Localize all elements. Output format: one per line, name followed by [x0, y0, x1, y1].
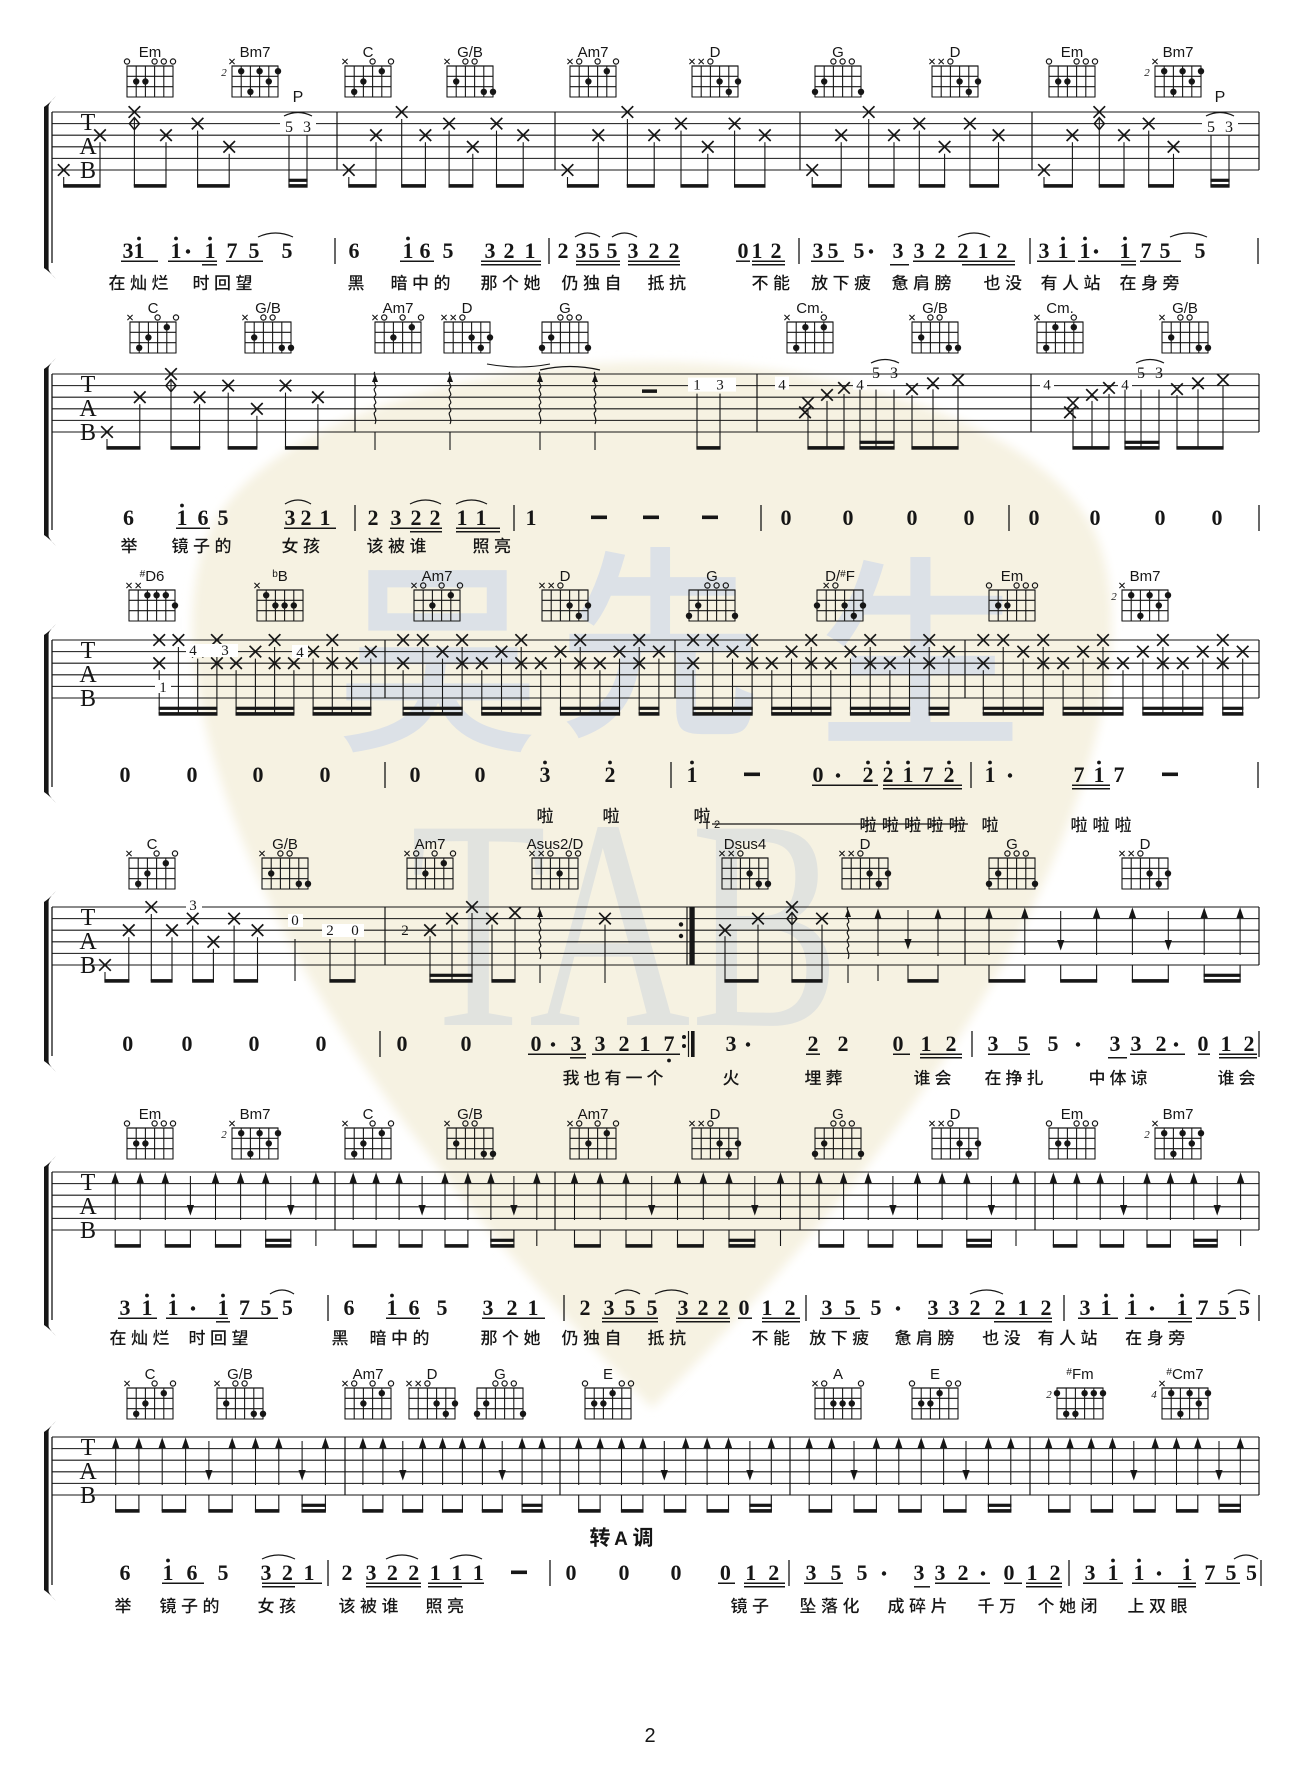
svg-text:G/B: G/B — [227, 1366, 253, 1383]
svg-text:3: 3 — [540, 762, 551, 787]
svg-text:3: 3 — [813, 238, 824, 263]
svg-text:0: 0 — [671, 1560, 682, 1585]
svg-text:3: 3 — [628, 238, 639, 263]
svg-text:4: 4 — [1151, 1389, 1157, 1401]
svg-text:5: 5 — [261, 1295, 272, 1320]
svg-text:1: 1 — [163, 1560, 174, 1585]
svg-text:1: 1 — [177, 505, 188, 530]
svg-text:G/B: G/B — [255, 300, 281, 317]
svg-text:2: 2 — [718, 1295, 729, 1320]
svg-text:Cm.: Cm. — [796, 300, 824, 317]
svg-text:1: 1 — [1080, 238, 1091, 263]
svg-text:G/B: G/B — [457, 1106, 483, 1123]
svg-text:0: 0 — [320, 762, 331, 787]
svg-text:0: 0 — [410, 762, 421, 787]
svg-text:4: 4 — [778, 378, 786, 394]
svg-text:3: 3 — [261, 1560, 272, 1585]
svg-text:0: 0 — [738, 238, 749, 263]
svg-text:2: 2 — [507, 1295, 518, 1320]
svg-text:1: 1 — [1134, 1560, 1145, 1585]
svg-text:T: T — [81, 110, 96, 136]
svg-text:3: 3 — [1131, 1031, 1142, 1056]
svg-text:2: 2 — [838, 1031, 849, 1056]
svg-text:5: 5 — [854, 238, 865, 263]
svg-text:Am7: Am7 — [415, 836, 446, 853]
svg-text:3: 3 — [485, 238, 496, 263]
svg-text:1: 1 — [473, 1560, 484, 1585]
svg-text:3: 3 — [716, 378, 724, 394]
svg-text:1: 1 — [525, 238, 536, 263]
svg-text:5: 5 — [1018, 1031, 1029, 1056]
svg-text:2: 2 — [1156, 1031, 1167, 1056]
svg-text:3: 3 — [1080, 1295, 1091, 1320]
svg-text:2: 2 — [1244, 1031, 1255, 1056]
svg-text:2: 2 — [669, 238, 680, 263]
svg-text:2: 2 — [970, 1295, 981, 1320]
svg-text:7: 7 — [227, 238, 238, 263]
svg-text:6: 6 — [123, 505, 134, 530]
svg-text:1: 1 — [171, 238, 182, 263]
svg-text:3: 3 — [576, 238, 587, 263]
svg-text:1: 1 — [1094, 762, 1105, 787]
svg-text:Cm.: Cm. — [1046, 300, 1074, 317]
svg-text:5: 5 — [1239, 1295, 1250, 1320]
svg-text:5: 5 — [1160, 238, 1171, 263]
svg-text:5: 5 — [607, 238, 618, 263]
svg-text:0: 0 — [893, 1031, 904, 1056]
svg-text:3: 3 — [366, 1560, 377, 1585]
svg-text:7: 7 — [1114, 762, 1125, 787]
svg-text:6: 6 — [349, 238, 360, 263]
svg-text:3: 3 — [678, 1295, 689, 1320]
svg-text:T: T — [81, 1170, 96, 1196]
svg-text:A: A — [79, 662, 97, 688]
svg-text:1: 1 — [1127, 1295, 1138, 1320]
svg-text:1: 1 — [457, 505, 468, 530]
svg-text:3: 3 — [571, 1031, 582, 1056]
svg-text:1: 1 — [526, 505, 537, 530]
svg-text:0: 0 — [316, 1031, 327, 1056]
svg-text:Bm7: Bm7 — [1130, 568, 1161, 585]
svg-text:2: 2 — [1144, 1129, 1150, 1141]
svg-text:0: 0 — [253, 762, 264, 787]
svg-text:3: 3 — [890, 365, 898, 382]
svg-text:G/B: G/B — [272, 836, 298, 853]
svg-text:2: 2 — [771, 238, 782, 263]
svg-text:2: 2 — [1050, 1560, 1061, 1585]
svg-text:5: 5 — [282, 1295, 293, 1320]
svg-text:Em: Em — [139, 44, 162, 61]
svg-text:0: 0 — [475, 762, 486, 787]
svg-text:2: 2 — [958, 1560, 969, 1585]
svg-text:A: A — [79, 134, 97, 160]
svg-text:7: 7 — [923, 762, 934, 787]
svg-text:2: 2 — [619, 1031, 630, 1056]
svg-text:0: 0 — [619, 1560, 630, 1585]
svg-text:3: 3 — [391, 505, 402, 530]
svg-text:P: P — [293, 89, 304, 106]
svg-text:2: 2 — [883, 762, 894, 787]
svg-text:2: 2 — [504, 238, 515, 263]
svg-text:3: 3 — [949, 1295, 960, 1320]
svg-text:0: 0 — [1029, 505, 1040, 530]
svg-text:T: T — [81, 372, 96, 398]
svg-text:B: B — [80, 158, 96, 184]
svg-text:A: A — [79, 1459, 97, 1485]
svg-text:Bm7: Bm7 — [1163, 44, 1194, 61]
svg-text:0: 0 — [1155, 505, 1166, 530]
svg-text:3: 3 — [123, 238, 134, 263]
svg-text:A: A — [79, 396, 97, 422]
svg-text:2: 2 — [368, 505, 379, 530]
svg-text:B: B — [80, 1483, 96, 1509]
svg-text:2: 2 — [326, 923, 334, 939]
svg-text:2: 2 — [946, 1031, 957, 1056]
svg-text:5: 5 — [589, 238, 600, 263]
svg-text:2: 2 — [430, 505, 441, 530]
svg-text:0: 0 — [813, 762, 824, 787]
svg-text:5: 5 — [1207, 119, 1215, 136]
svg-text:5: 5 — [218, 1560, 229, 1585]
svg-text:Am7: Am7 — [578, 44, 609, 61]
svg-text:3: 3 — [1039, 238, 1050, 263]
svg-text:3: 3 — [988, 1031, 999, 1056]
svg-text:0: 0 — [739, 1295, 750, 1320]
svg-text:3: 3 — [928, 1295, 939, 1320]
svg-text:5: 5 — [443, 238, 454, 263]
svg-text:1: 1 — [451, 1560, 462, 1585]
svg-text:3: 3 — [726, 1031, 737, 1056]
svg-text:Am7: Am7 — [383, 300, 414, 317]
svg-text:A: A — [833, 1366, 843, 1383]
svg-text:2: 2 — [580, 1295, 591, 1320]
svg-text:1: 1 — [1182, 1560, 1193, 1585]
svg-text:2: 2 — [408, 1560, 419, 1585]
svg-text:5: 5 — [625, 1295, 636, 1320]
svg-text:0: 0 — [1004, 1560, 1015, 1585]
svg-text:0: 0 — [397, 1031, 408, 1056]
svg-text:1: 1 — [1058, 238, 1069, 263]
svg-text:3: 3 — [483, 1295, 494, 1320]
svg-text:0: 0 — [1198, 1031, 1209, 1056]
svg-text:5: 5 — [437, 1295, 448, 1320]
svg-text:0: 0 — [187, 762, 198, 787]
svg-text:3: 3 — [285, 505, 296, 530]
svg-text:2: 2 — [221, 1129, 227, 1141]
svg-text:T: T — [81, 905, 96, 931]
svg-text:1: 1 — [752, 238, 763, 263]
svg-text:1: 1 — [304, 1560, 315, 1585]
svg-text:2: 2 — [301, 505, 312, 530]
svg-text:5: 5 — [285, 119, 293, 136]
svg-text:5: 5 — [1048, 1031, 1059, 1056]
svg-text:0: 0 — [964, 505, 975, 530]
svg-text:2: 2 — [935, 238, 946, 263]
svg-text:1: 1 — [134, 238, 145, 263]
svg-text:1: 1 — [978, 238, 989, 263]
svg-text:1: 1 — [921, 1031, 932, 1056]
svg-text:7: 7 — [1198, 1295, 1209, 1320]
svg-text:0: 0 — [1090, 505, 1101, 530]
svg-text:B: B — [80, 953, 96, 979]
svg-text:3: 3 — [1110, 1031, 1121, 1056]
svg-text:5: 5 — [828, 238, 839, 263]
svg-text:1: 1 — [1177, 1295, 1188, 1320]
svg-text:1: 1 — [528, 1295, 539, 1320]
svg-text:T: T — [81, 1435, 96, 1461]
svg-text:1: 1 — [762, 1295, 773, 1320]
svg-text:5: 5 — [218, 505, 229, 530]
svg-text:0: 0 — [781, 505, 792, 530]
svg-text:5: 5 — [1195, 238, 1206, 263]
svg-text:0: 0 — [291, 913, 299, 929]
svg-text:2: 2 — [1111, 591, 1117, 603]
svg-text:3: 3 — [1085, 1560, 1096, 1585]
svg-text:0: 0 — [1212, 505, 1223, 530]
svg-text:A: A — [79, 929, 97, 955]
svg-text:1: 1 — [687, 762, 698, 787]
svg-text:3: 3 — [604, 1295, 615, 1320]
svg-text:3: 3 — [221, 643, 229, 659]
svg-text:2: 2 — [605, 762, 616, 787]
svg-text:1: 1 — [745, 1560, 756, 1585]
svg-text:Em: Em — [1001, 568, 1024, 585]
svg-text:Em: Em — [1061, 44, 1084, 61]
svg-text:2: 2 — [401, 923, 409, 939]
svg-text:7: 7 — [1205, 1560, 1216, 1585]
svg-text:2: 2 — [808, 1031, 819, 1056]
svg-text:Em: Em — [139, 1106, 162, 1123]
svg-text:2: 2 — [785, 1295, 796, 1320]
svg-text:Dsus4: Dsus4 — [724, 836, 767, 853]
svg-text:6: 6 — [187, 1560, 198, 1585]
svg-text:2: 2 — [944, 762, 955, 787]
svg-text:0: 0 — [566, 1560, 577, 1585]
svg-text:2: 2 — [1041, 1295, 1052, 1320]
svg-text:Am7: Am7 — [422, 568, 453, 585]
svg-text:B: B — [80, 686, 96, 712]
svg-text:3: 3 — [1155, 365, 1163, 382]
svg-text:2: 2 — [558, 238, 569, 263]
svg-text:B: B — [80, 420, 96, 446]
svg-text:G/B: G/B — [1172, 300, 1198, 317]
svg-text:2: 2 — [863, 762, 874, 787]
svg-text:3: 3 — [914, 1560, 925, 1585]
svg-text:4: 4 — [296, 645, 304, 661]
svg-text:5: 5 — [249, 238, 260, 263]
svg-text:1: 1 — [1018, 1295, 1029, 1320]
svg-text:1: 1 — [1221, 1031, 1232, 1056]
svg-text:0: 0 — [720, 1560, 731, 1585]
svg-text:1: 1 — [1027, 1560, 1038, 1585]
svg-text:B: B — [80, 1218, 96, 1244]
svg-text:0: 0 — [531, 1031, 542, 1056]
svg-text:1: 1 — [1120, 238, 1131, 263]
svg-text:2: 2 — [649, 238, 660, 263]
svg-text:1: 1 — [1108, 1560, 1119, 1585]
svg-text:2: 2 — [958, 238, 969, 263]
svg-text:0: 0 — [249, 1031, 260, 1056]
svg-text:7: 7 — [1074, 762, 1085, 787]
svg-text:0: 0 — [351, 923, 359, 939]
svg-text:0: 0 — [907, 505, 918, 530]
svg-text:7: 7 — [1141, 238, 1152, 263]
svg-text:0: 0 — [122, 1031, 133, 1056]
svg-text:1: 1 — [903, 762, 914, 787]
svg-text:Bm7: Bm7 — [1163, 1106, 1194, 1123]
svg-text:0: 0 — [461, 1031, 472, 1056]
svg-text:1: 1 — [168, 1295, 179, 1320]
svg-text:2: 2 — [387, 1560, 398, 1585]
svg-text:3: 3 — [595, 1031, 606, 1056]
svg-text:6: 6 — [344, 1295, 355, 1320]
svg-text:3: 3 — [120, 1295, 131, 1320]
svg-text:1: 1 — [403, 238, 414, 263]
svg-text:5: 5 — [857, 1560, 868, 1585]
svg-text:5: 5 — [647, 1295, 658, 1320]
svg-text:3: 3 — [822, 1295, 833, 1320]
svg-text:3: 3 — [893, 238, 904, 263]
svg-text:1: 1 — [640, 1031, 651, 1056]
svg-text:5: 5 — [872, 365, 880, 382]
svg-text:1: 1 — [985, 762, 996, 787]
svg-text:2: 2 — [342, 1560, 353, 1585]
svg-text:#Cm7: #Cm7 — [1166, 1366, 1203, 1383]
svg-text:7: 7 — [664, 1031, 675, 1056]
svg-text:Bm7: Bm7 — [240, 44, 271, 61]
svg-text:4: 4 — [189, 643, 197, 659]
svg-text:5: 5 — [1137, 365, 1145, 382]
svg-text:7: 7 — [239, 1295, 250, 1320]
svg-text:1: 1 — [430, 1560, 441, 1585]
svg-text:1: 1 — [476, 505, 487, 530]
svg-text:5: 5 — [1246, 1560, 1257, 1585]
svg-text:3: 3 — [189, 898, 197, 914]
svg-text:Em: Em — [1061, 1106, 1084, 1123]
svg-text:G/B: G/B — [922, 300, 948, 317]
svg-text:6: 6 — [420, 238, 431, 263]
svg-text:3: 3 — [806, 1560, 817, 1585]
svg-text:6: 6 — [198, 505, 209, 530]
svg-text:3: 3 — [935, 1560, 946, 1585]
svg-text:2: 2 — [995, 1295, 1006, 1320]
svg-text:5: 5 — [282, 238, 293, 263]
svg-text:T: T — [81, 638, 96, 664]
svg-text:2: 2 — [644, 1725, 655, 1747]
svg-text:0: 0 — [843, 505, 854, 530]
svg-text:Am7: Am7 — [353, 1366, 384, 1383]
svg-text:2: 2 — [698, 1295, 709, 1320]
svg-text:6: 6 — [409, 1295, 420, 1320]
svg-text:2: 2 — [221, 67, 227, 79]
svg-text:D/#F: D/#F — [825, 568, 855, 585]
svg-text:0: 0 — [120, 762, 131, 787]
svg-text:2: 2 — [282, 1560, 293, 1585]
svg-text:P: P — [1215, 89, 1226, 106]
svg-text:2: 2 — [768, 1560, 779, 1585]
svg-text:3: 3 — [303, 119, 311, 136]
svg-text:E: E — [603, 1366, 613, 1383]
svg-text:Am7: Am7 — [578, 1106, 609, 1123]
svg-text:5: 5 — [845, 1295, 856, 1320]
svg-text:A: A — [614, 1529, 628, 1550]
svg-text:1: 1 — [320, 505, 331, 530]
svg-text:1: 1 — [387, 1295, 398, 1320]
svg-text:6: 6 — [120, 1560, 131, 1585]
svg-text:A: A — [79, 1194, 97, 1220]
svg-text:5: 5 — [831, 1560, 842, 1585]
svg-text:5: 5 — [1219, 1295, 1230, 1320]
svg-text:Asus2/D: Asus2/D — [527, 836, 584, 853]
svg-text:5: 5 — [1226, 1560, 1237, 1585]
svg-text:1: 1 — [159, 680, 167, 696]
svg-text:1: 1 — [205, 238, 216, 263]
svg-text:1: 1 — [1101, 1295, 1112, 1320]
svg-text:1: 1 — [693, 378, 701, 394]
svg-text:E: E — [930, 1366, 940, 1383]
svg-text:3: 3 — [1225, 119, 1233, 136]
svg-text:4: 4 — [1043, 378, 1051, 394]
svg-text:2: 2 — [997, 238, 1008, 263]
svg-text:3: 3 — [914, 238, 925, 263]
svg-text:2: 2 — [411, 505, 422, 530]
svg-text:0: 0 — [182, 1031, 193, 1056]
svg-text:1: 1 — [218, 1295, 229, 1320]
svg-text:1: 1 — [142, 1295, 153, 1320]
svg-text:2: 2 — [1144, 67, 1150, 79]
svg-text:G/B: G/B — [457, 44, 483, 61]
svg-text:Bm7: Bm7 — [240, 1106, 271, 1123]
svg-text:2: 2 — [714, 819, 720, 831]
svg-text:5: 5 — [871, 1295, 882, 1320]
svg-text:2: 2 — [1046, 1389, 1052, 1401]
